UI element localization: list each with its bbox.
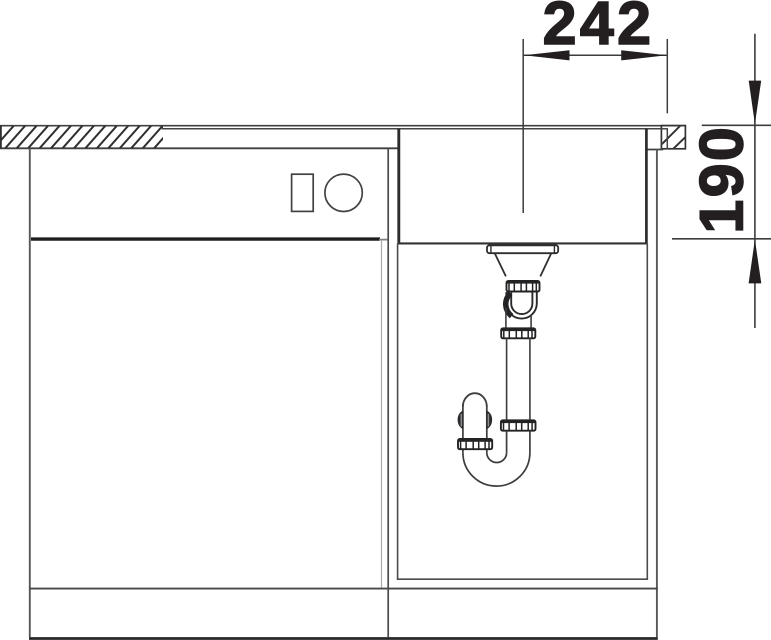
svg-text:190: 190 [687,125,755,234]
svg-text:242: 242 [543,0,655,57]
